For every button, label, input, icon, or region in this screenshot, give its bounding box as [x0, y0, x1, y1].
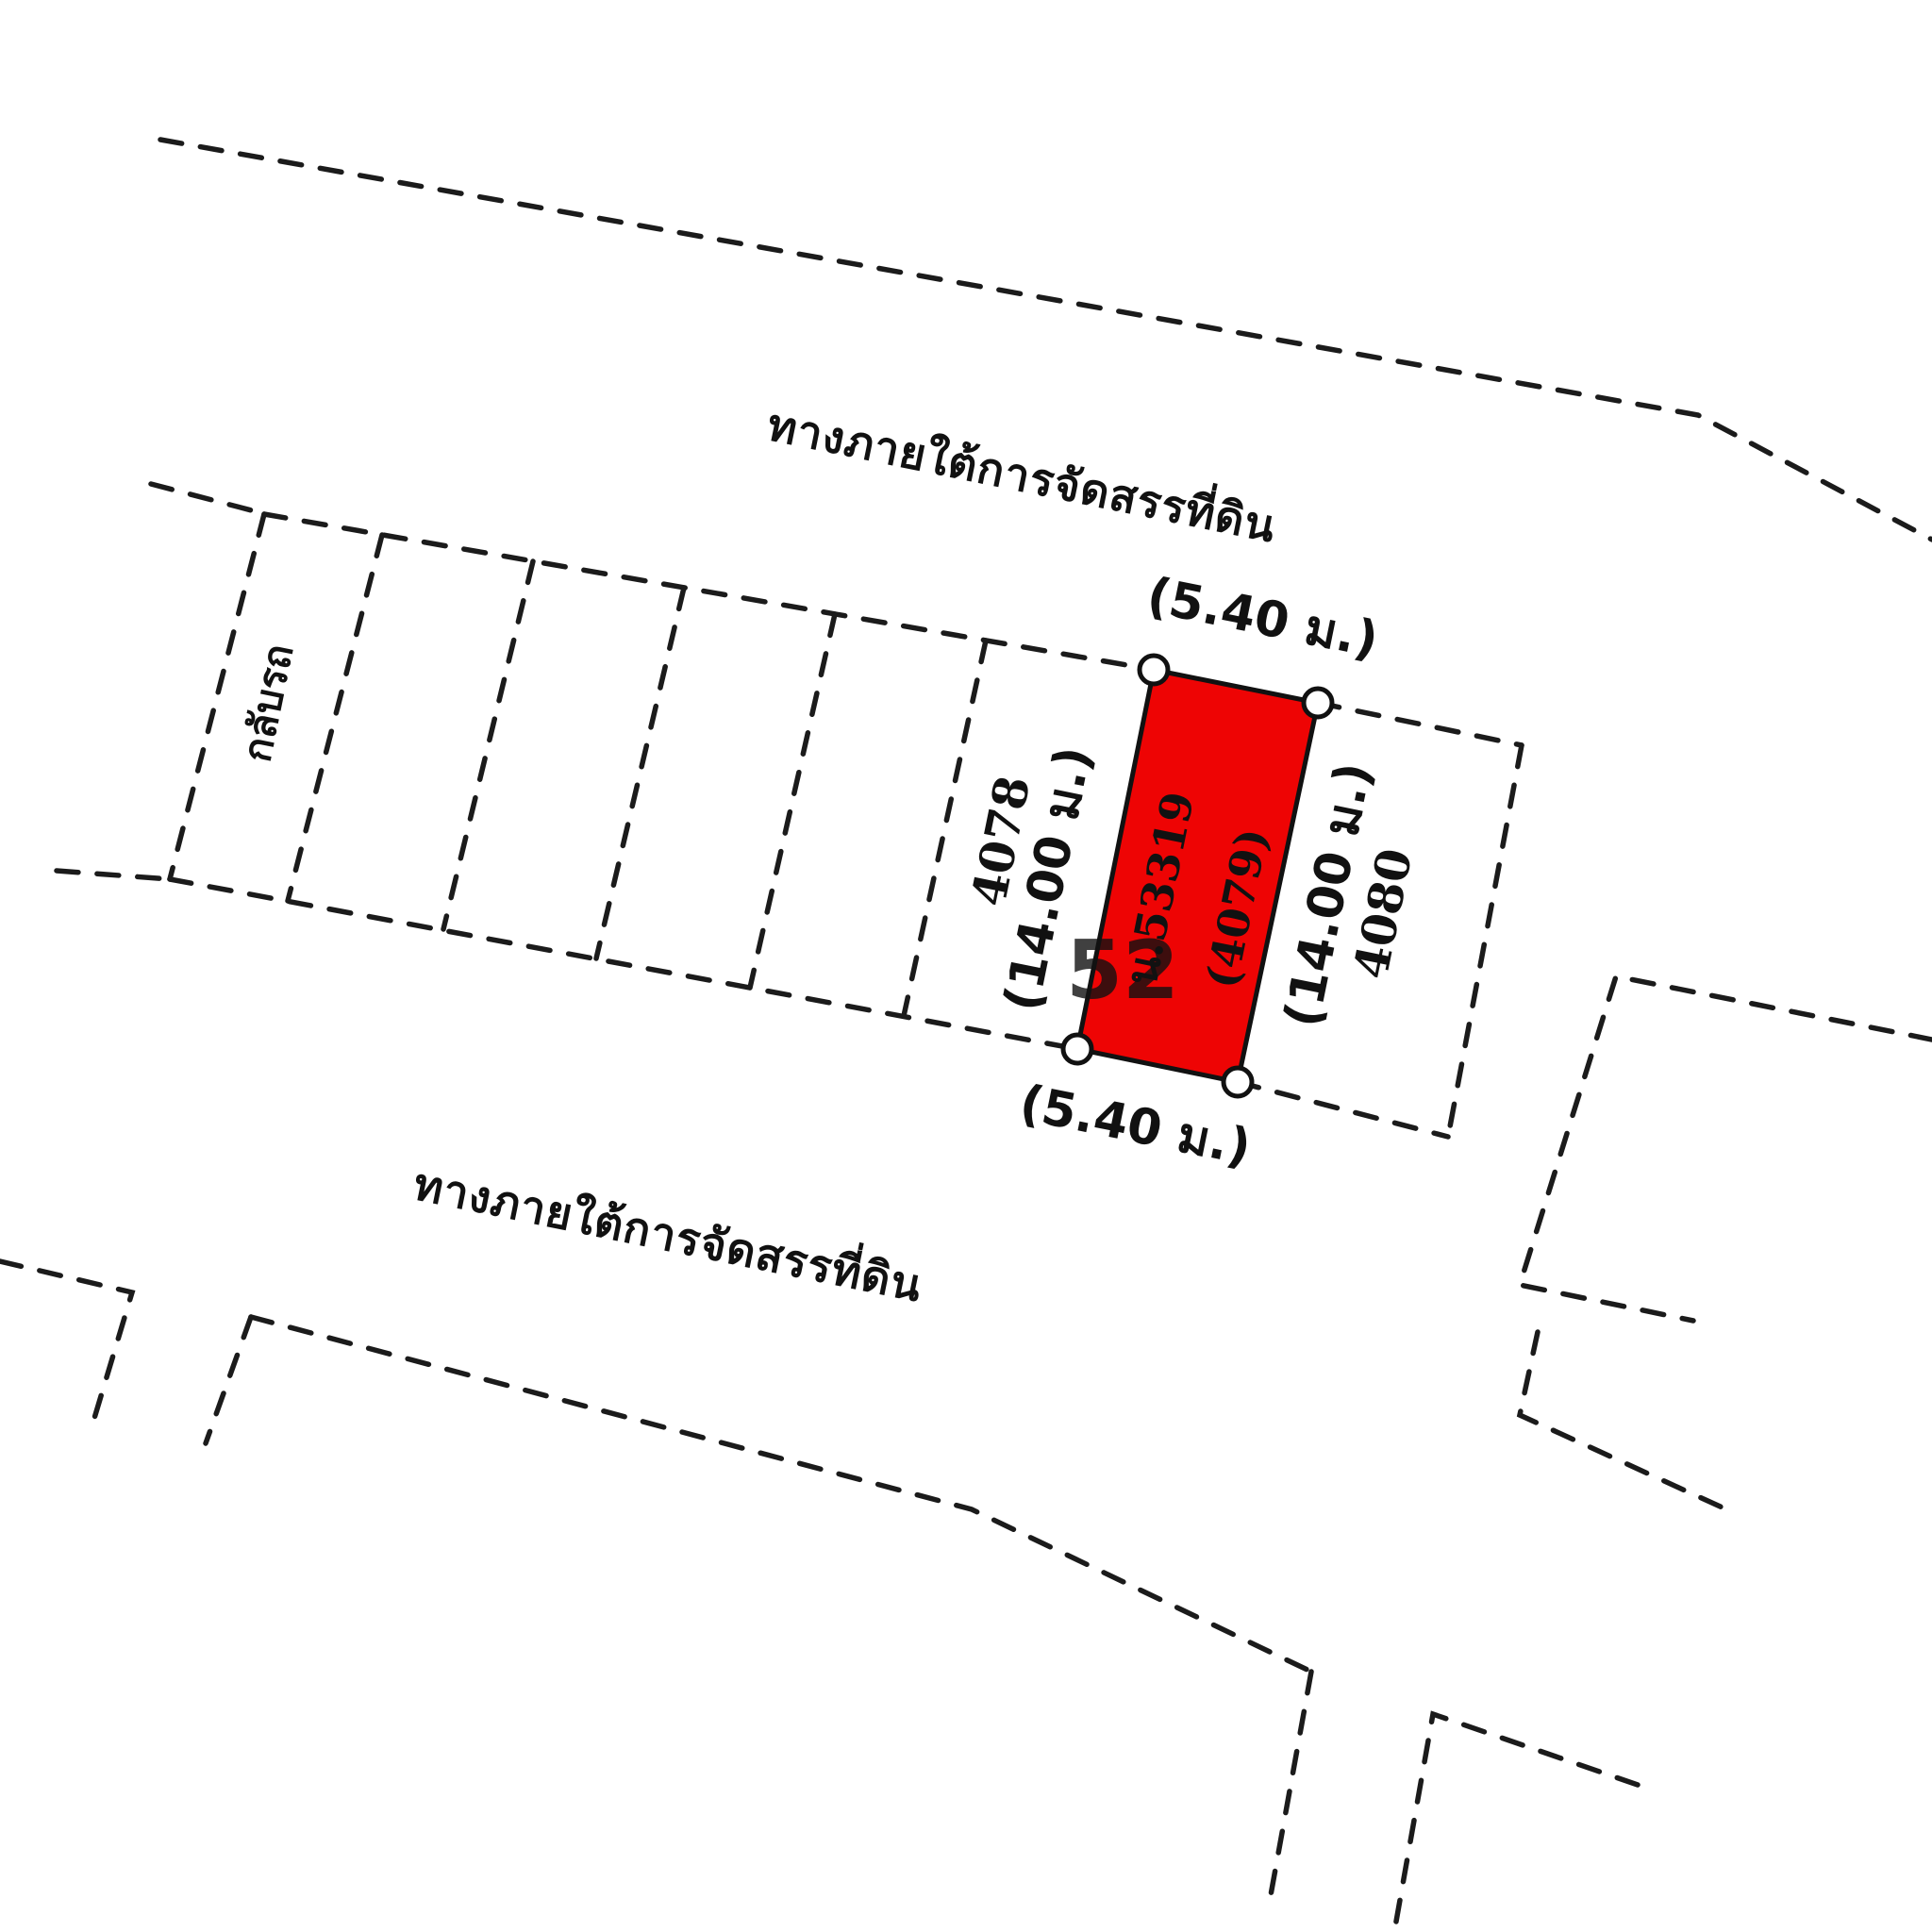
plot-divider-4 [904, 641, 986, 1016]
band-top-boundary-line [264, 514, 1154, 670]
lower-right-strip-line [1520, 1332, 1726, 1509]
vertex-marker-bottom-left [1063, 1035, 1091, 1063]
band-top-left-approach-line [151, 484, 262, 513]
highlighted-plot-group: 52 น.53319 (4079) [1063, 656, 1332, 1096]
band-bottom-boundary-right-line [1238, 1082, 1448, 1137]
band-bottom-left-piece-line [57, 871, 170, 879]
bottom-road-boundary-line [251, 1317, 1311, 1672]
vertex-marker-top-right [1304, 689, 1332, 717]
uturn-strip-label: กลับรถ [233, 641, 302, 766]
uturn-strip-right-edge [288, 535, 382, 901]
band-top-boundary-right-line [1318, 703, 1522, 745]
bottom-road-left-leg [206, 1317, 251, 1443]
vertex-marker-bottom-right [1224, 1068, 1252, 1096]
land-plot-diagram: 52 น.53319 (4079) (5.40 ม.) (5.40 ม.) (1… [0, 0, 1932, 1932]
bottom-road-label: ทางภายใต้การจัดสรรที่ดิน [409, 1152, 928, 1312]
top-road-label: ทางภายใต้การจัดสรรที่ดิน [763, 392, 1282, 553]
left-parcel-corner [0, 1261, 132, 1424]
boundary-lines [0, 140, 1932, 1932]
plot-divider-1 [443, 561, 533, 929]
bottom-road-down-leg [1269, 1672, 1311, 1906]
band-bottom-boundary-line [170, 879, 1077, 1049]
right-parcel-outline [1520, 976, 1932, 1321]
plot-4080-right-divider [1448, 745, 1522, 1137]
bottom-right-parcel-corner [1394, 1714, 1638, 1932]
dimension-bottom-width: (5.40 ม.) [1015, 1074, 1256, 1176]
survey-map-canvas: 52 น.53319 (4079) (5.40 ม.) (5.40 ม.) (1… [0, 0, 1932, 1932]
vertex-marker-top-left [1140, 656, 1168, 684]
dimension-top-width: (5.40 ม.) [1142, 567, 1383, 669]
plot-divider-2 [596, 588, 684, 958]
plot-divider-3 [750, 614, 835, 988]
